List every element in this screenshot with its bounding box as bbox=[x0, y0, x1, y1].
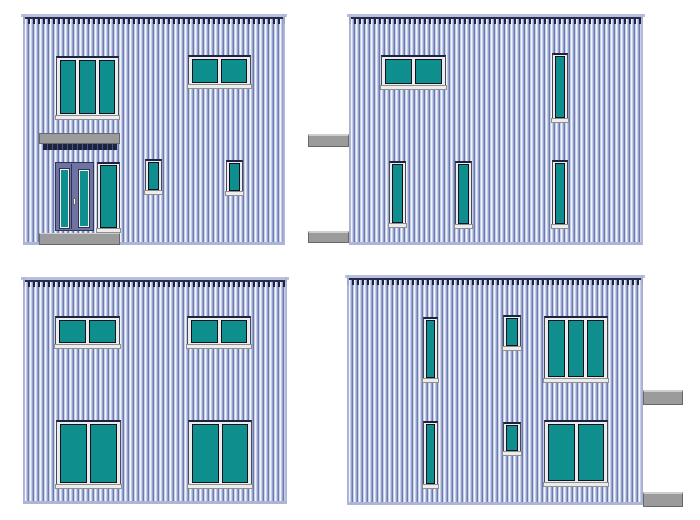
window-panes bbox=[100, 165, 117, 228]
facade-side-edge bbox=[349, 14, 351, 245]
roof-shadow-band bbox=[23, 282, 287, 287]
entry-step bbox=[39, 233, 120, 245]
window-sill bbox=[543, 482, 609, 487]
window-sill bbox=[422, 378, 439, 383]
window-v bbox=[423, 317, 438, 382]
window-v bbox=[423, 421, 438, 488]
glass-pane bbox=[148, 162, 159, 190]
window-panes bbox=[548, 320, 604, 377]
elevation-side-b bbox=[347, 275, 643, 505]
window-sill bbox=[551, 224, 569, 229]
glass-pane bbox=[392, 164, 403, 223]
elevation-side-a bbox=[349, 14, 643, 245]
glass-pane bbox=[506, 318, 518, 346]
glass-pane bbox=[99, 60, 115, 114]
elevation-front bbox=[23, 14, 285, 245]
window-sill bbox=[187, 484, 253, 489]
glass-pane bbox=[221, 320, 248, 343]
window-v bbox=[97, 162, 120, 232]
glass-pane bbox=[222, 424, 249, 483]
glass-pane bbox=[89, 320, 116, 343]
window-h2 bbox=[544, 420, 608, 486]
glass-pane bbox=[568, 320, 585, 377]
facade-side-edge bbox=[283, 14, 285, 245]
window-panes bbox=[229, 163, 240, 191]
elevation-rear bbox=[23, 277, 287, 504]
window-v bbox=[455, 161, 472, 228]
facade-base-edge bbox=[349, 242, 643, 245]
window-panes bbox=[506, 318, 518, 346]
door-glass-panel bbox=[79, 170, 89, 227]
entry-door bbox=[55, 162, 94, 231]
projection-tab bbox=[643, 390, 683, 405]
window-sill bbox=[55, 115, 120, 120]
glass-pane bbox=[548, 320, 565, 377]
window-panes bbox=[148, 162, 159, 190]
roof-shadow-band bbox=[347, 280, 643, 285]
glass-pane bbox=[60, 424, 87, 483]
glass-pane bbox=[59, 320, 86, 343]
glass-pane bbox=[90, 424, 117, 483]
window-panes bbox=[426, 424, 435, 484]
window-sill bbox=[454, 224, 473, 229]
window-s bbox=[226, 160, 243, 195]
facade-side-edge bbox=[641, 14, 643, 245]
window-h2 bbox=[187, 316, 251, 348]
window-panes bbox=[60, 60, 115, 114]
glass-pane bbox=[229, 163, 240, 191]
facade-side-edge bbox=[23, 14, 25, 245]
roof-shadow-band bbox=[349, 19, 643, 24]
window-h2 bbox=[381, 55, 446, 89]
window-s bbox=[503, 422, 521, 455]
window-sill bbox=[543, 378, 609, 383]
facade-base-edge bbox=[347, 502, 643, 505]
window-sill bbox=[225, 191, 244, 196]
facade-side-edge bbox=[347, 275, 349, 505]
glass-pane bbox=[192, 59, 218, 83]
glass-pane bbox=[221, 59, 247, 83]
glass-pane bbox=[191, 320, 218, 343]
glass-pane bbox=[60, 60, 76, 114]
window-h2 bbox=[56, 420, 121, 488]
window-panes bbox=[191, 320, 247, 343]
window-v bbox=[389, 161, 406, 227]
elevation-drawing-canvas bbox=[0, 0, 700, 520]
window-s bbox=[503, 315, 521, 350]
window-sill bbox=[551, 118, 569, 123]
window-panes bbox=[426, 320, 435, 378]
window-s bbox=[145, 159, 162, 194]
window-sill bbox=[187, 84, 252, 89]
window-sill bbox=[380, 85, 447, 90]
window-sill bbox=[186, 344, 252, 349]
glass-pane bbox=[548, 424, 575, 481]
window-panes bbox=[555, 56, 565, 118]
entry-canopy bbox=[39, 133, 120, 144]
window-panes bbox=[392, 164, 403, 223]
glass-pane bbox=[415, 59, 442, 84]
glass-pane bbox=[506, 425, 518, 451]
window-panes bbox=[192, 424, 248, 483]
facade-side-edge bbox=[285, 277, 287, 504]
glass-pane bbox=[79, 60, 95, 114]
window-v bbox=[552, 160, 568, 228]
glass-pane bbox=[587, 320, 604, 377]
roof-shadow-band bbox=[23, 19, 285, 24]
window-panes bbox=[555, 163, 565, 224]
window-panes bbox=[60, 424, 117, 483]
window-panes bbox=[192, 59, 247, 83]
window-sill bbox=[144, 190, 163, 195]
window-sill bbox=[422, 484, 439, 489]
door-handle bbox=[73, 198, 76, 205]
projection-tab bbox=[308, 134, 349, 147]
glass-pane bbox=[555, 163, 565, 224]
glass-pane bbox=[100, 165, 117, 228]
window-panes bbox=[506, 425, 518, 451]
window-sill bbox=[388, 223, 407, 228]
window-sill bbox=[54, 344, 121, 349]
glass-pane bbox=[426, 424, 435, 484]
window-panes bbox=[458, 164, 469, 224]
glass-pane bbox=[578, 424, 605, 481]
facade-side-edge bbox=[23, 277, 25, 504]
window-h2 bbox=[55, 316, 120, 348]
window-panes bbox=[385, 59, 442, 84]
window-panes bbox=[548, 424, 604, 481]
door-glass-panel bbox=[60, 169, 69, 228]
window-sill bbox=[502, 346, 522, 351]
glass-pane bbox=[458, 164, 469, 224]
window-v bbox=[552, 53, 568, 122]
glass-pane bbox=[426, 320, 435, 378]
window-h2 bbox=[188, 55, 251, 88]
window-h2 bbox=[188, 420, 252, 488]
glass-pane bbox=[555, 56, 565, 118]
facade-base-edge bbox=[23, 501, 287, 504]
door-leaf-divider bbox=[71, 164, 72, 229]
window-h3 bbox=[56, 56, 119, 119]
canopy-shadow bbox=[43, 144, 117, 150]
glass-pane bbox=[192, 424, 219, 483]
projection-tab bbox=[308, 231, 349, 243]
projection-tab bbox=[643, 492, 683, 507]
window-sill bbox=[55, 484, 122, 489]
window-panes bbox=[59, 320, 116, 343]
window-sill bbox=[502, 451, 522, 456]
window-h3 bbox=[544, 316, 608, 382]
glass-pane bbox=[385, 59, 412, 84]
